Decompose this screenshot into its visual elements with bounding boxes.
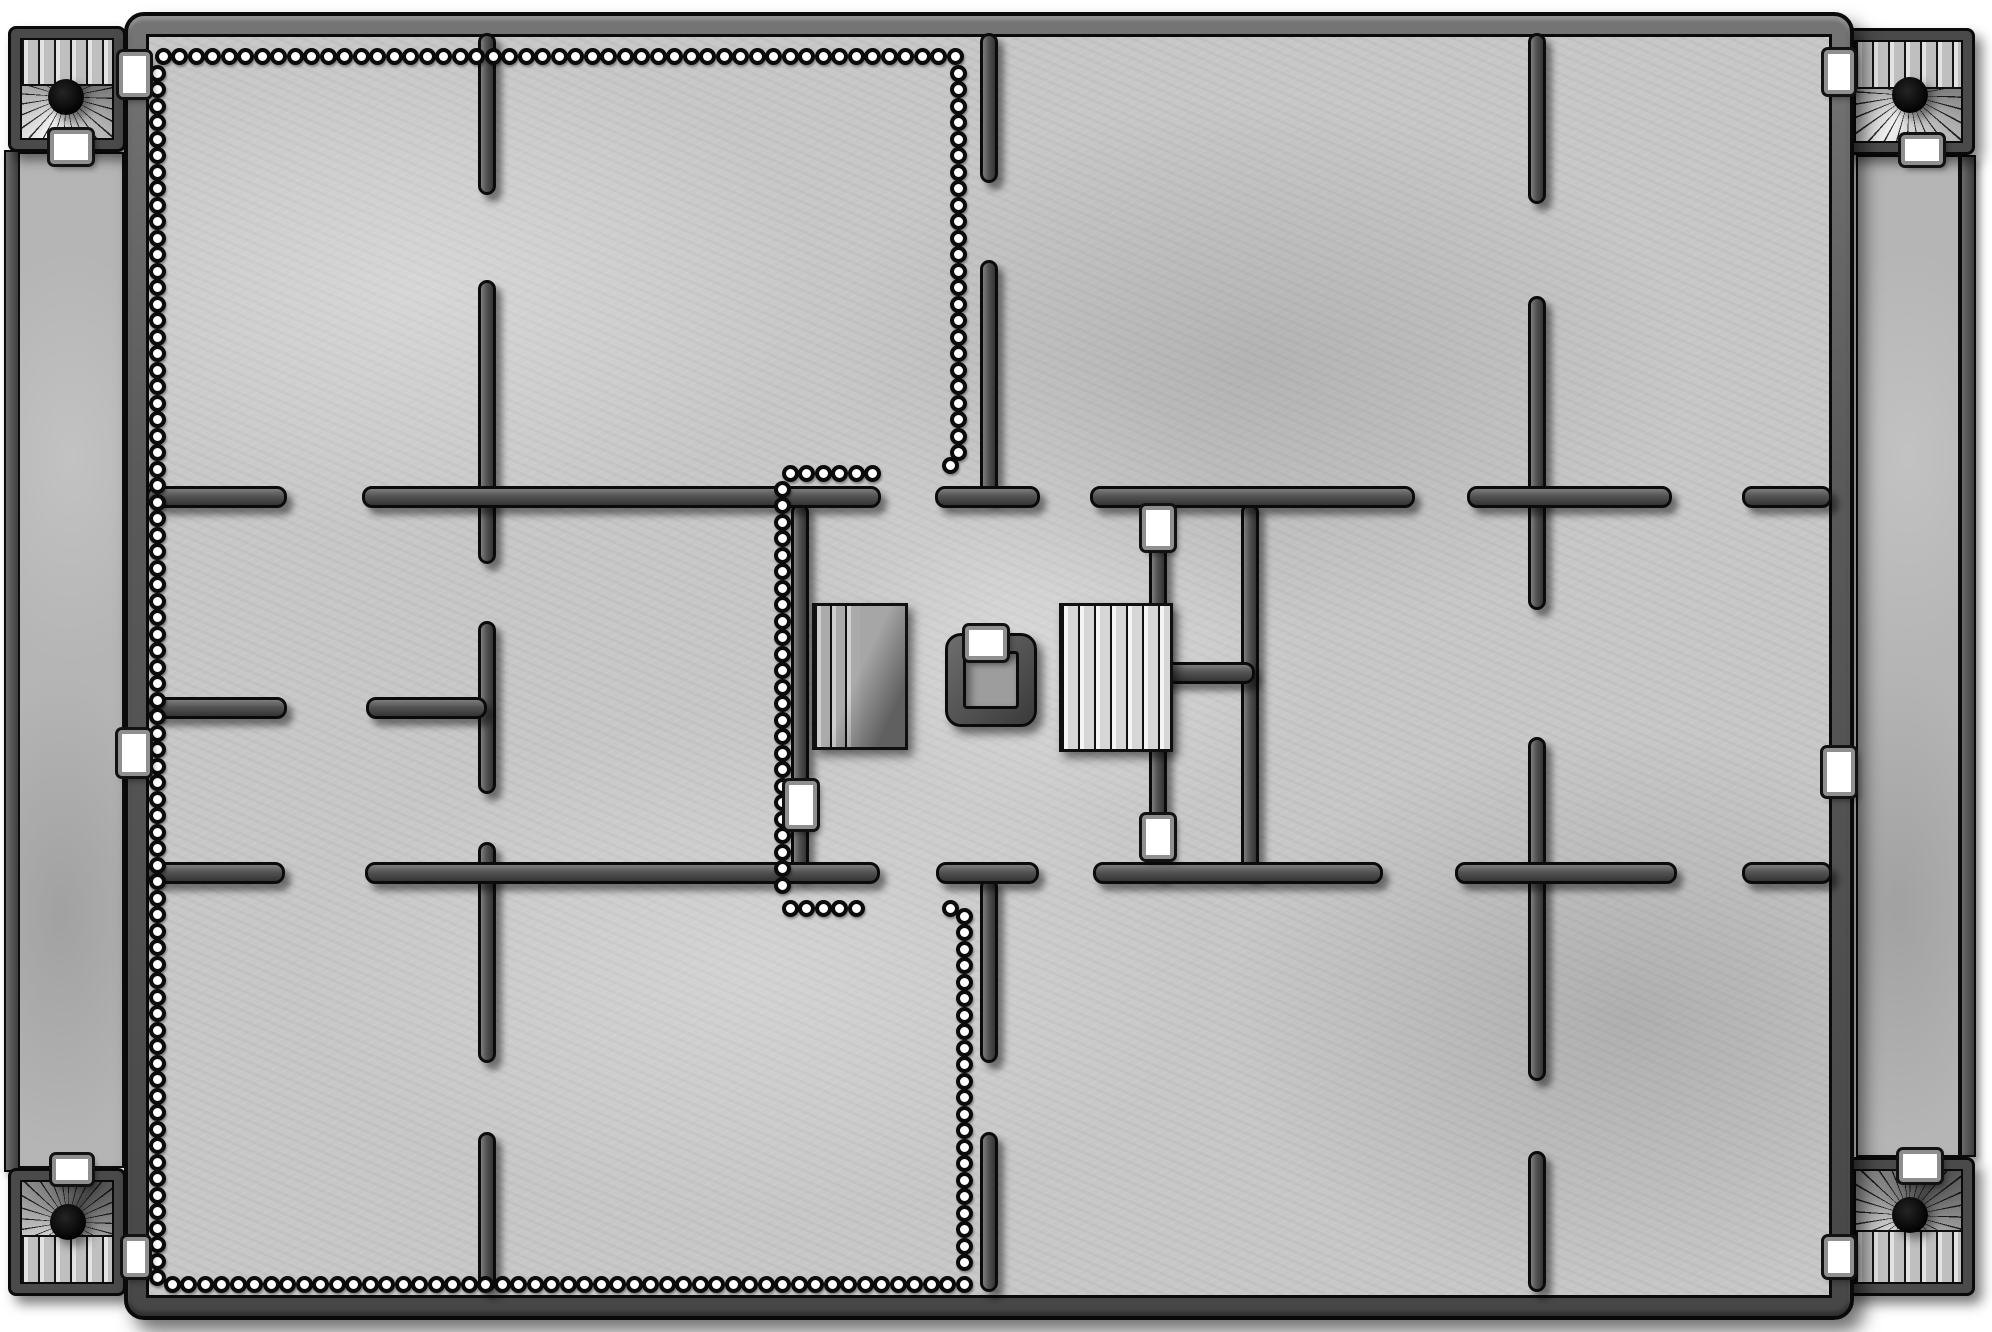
column-bead <box>149 411 166 428</box>
column-bead <box>560 1276 577 1293</box>
column-bead <box>699 48 716 65</box>
column-bead <box>774 530 791 547</box>
column-bead <box>149 1088 166 1105</box>
column-bead <box>774 745 791 762</box>
column-bead <box>171 48 188 65</box>
column-bead <box>303 48 320 65</box>
column-bead <box>149 692 166 709</box>
column-bead <box>149 560 166 577</box>
column-bead <box>149 725 166 742</box>
column-bead <box>890 1276 907 1293</box>
column-bead <box>461 1276 478 1293</box>
column-bead <box>782 48 799 65</box>
column-bead <box>774 481 791 498</box>
column-bead <box>149 461 166 478</box>
column-bead <box>716 48 733 65</box>
column-bead <box>774 596 791 613</box>
column-bead <box>149 98 166 115</box>
column-bead <box>149 65 166 82</box>
wall-segment <box>1528 296 1546 610</box>
column-bead <box>774 844 791 861</box>
column-bead <box>149 1137 166 1154</box>
column-bead <box>950 230 967 247</box>
column-bead <box>411 1276 428 1293</box>
column-bead <box>774 728 791 745</box>
wall-segment <box>1455 862 1677 884</box>
column-bead <box>782 900 799 917</box>
column-bead <box>956 1238 973 1255</box>
column-bead <box>725 1276 742 1293</box>
column-bead <box>950 329 967 346</box>
column-bead <box>950 279 967 296</box>
column-bead <box>617 48 634 65</box>
column-bead <box>501 48 518 65</box>
column-bead <box>149 1253 166 1270</box>
column-bead <box>923 1276 940 1293</box>
column-bead <box>692 1276 709 1293</box>
column-bead <box>149 675 166 692</box>
column-bead <box>485 48 502 65</box>
column-bead <box>149 609 166 626</box>
column-bead <box>774 646 791 663</box>
column-bead <box>149 1022 166 1039</box>
column-bead <box>659 1276 676 1293</box>
staircase-ascending <box>1059 603 1173 752</box>
column-bead <box>149 642 166 659</box>
column-bead <box>774 613 791 630</box>
door-stairroom-top-right <box>1901 135 1943 165</box>
column-bead <box>149 477 166 494</box>
column-bead <box>149 1170 166 1187</box>
column-bead <box>149 576 166 593</box>
column-bead <box>149 197 166 214</box>
column-bead <box>353 48 370 65</box>
column-bead <box>149 906 166 923</box>
column-bead <box>149 1236 166 1253</box>
corridor-right-outer-wall <box>1960 155 1976 1157</box>
column-bead <box>149 114 166 131</box>
spiral-stair-top-left <box>20 38 114 140</box>
door-left-border-bottom <box>123 1237 149 1277</box>
column-bead <box>270 48 287 65</box>
column-bead <box>510 1276 527 1293</box>
column-bead <box>149 758 166 775</box>
column-bead <box>897 48 914 65</box>
column-bead <box>749 48 766 65</box>
column-bead <box>197 1276 214 1293</box>
column-bead <box>956 1254 973 1271</box>
column-bead <box>149 180 166 197</box>
column-bead <box>149 774 166 791</box>
column-bead <box>873 1276 890 1293</box>
column-bead <box>774 761 791 778</box>
wall-segment <box>478 1132 496 1292</box>
column-bead <box>254 48 271 65</box>
column-bead <box>518 48 535 65</box>
column-bead <box>950 164 967 181</box>
column-bead <box>263 1276 280 1293</box>
column-bead <box>149 626 166 643</box>
column-bead <box>395 1276 412 1293</box>
column-bead <box>848 48 865 65</box>
door-right-border-middle <box>1823 748 1855 796</box>
column-bead <box>950 98 967 115</box>
wall-segment <box>1742 486 1832 508</box>
column-bead <box>774 679 791 696</box>
wall-segment <box>935 486 1040 508</box>
column-bead <box>864 465 881 482</box>
column-bead <box>534 48 551 65</box>
column-bead <box>149 791 166 808</box>
column-bead <box>774 497 791 514</box>
column-bead <box>149 428 166 445</box>
corridor-right-floor <box>1856 155 1960 1157</box>
column-bead <box>774 580 791 597</box>
column-bead <box>939 1276 956 1293</box>
door-stairroom-bottom-right <box>1899 1150 1941 1182</box>
column-bead <box>956 1106 973 1123</box>
wall-segment <box>146 486 287 508</box>
column-bead <box>956 990 973 1007</box>
column-bead <box>452 48 469 65</box>
column-bead <box>149 131 166 148</box>
column-bead <box>149 1038 166 1055</box>
stair-tread-band <box>1856 1230 1961 1282</box>
column-bead <box>149 956 166 973</box>
column-bead <box>831 48 848 65</box>
column-bead <box>149 972 166 989</box>
column-bead <box>950 362 967 379</box>
door-chamber-east-bottom <box>1142 815 1174 859</box>
column-bead <box>774 662 791 679</box>
column-bead <box>650 48 667 65</box>
column-bead <box>950 296 967 313</box>
column-bead <box>774 827 791 844</box>
column-bead <box>626 1276 643 1293</box>
column-bead <box>930 48 947 65</box>
column-bead <box>188 48 205 65</box>
column-bead <box>708 1276 725 1293</box>
column-bead <box>950 81 967 98</box>
column-bead <box>798 48 815 65</box>
wall-segment <box>980 260 998 500</box>
column-bead <box>593 1276 610 1293</box>
column-bead <box>950 180 967 197</box>
wall-segment <box>980 33 998 183</box>
column-bead <box>956 1056 973 1073</box>
column-bead <box>149 659 166 676</box>
column-bead <box>666 48 683 65</box>
column-bead <box>567 48 584 65</box>
column-bead <box>950 131 967 148</box>
column-bead <box>149 444 166 461</box>
column-bead <box>149 840 166 857</box>
column-bead <box>956 924 973 941</box>
wall-segment <box>1241 503 1259 877</box>
column-bead <box>848 465 865 482</box>
column-bead <box>956 1188 973 1205</box>
column-bead <box>164 1276 181 1293</box>
column-bead <box>956 1139 973 1156</box>
door-stairroom-top-left <box>50 130 92 164</box>
column-bead <box>807 1276 824 1293</box>
column-bead <box>798 900 815 917</box>
column-bead <box>840 1276 857 1293</box>
dungeon-map <box>0 0 1992 1332</box>
wall-segment <box>146 862 285 884</box>
column-bead <box>774 514 791 531</box>
column-bead <box>956 1221 973 1238</box>
column-bead <box>402 48 419 65</box>
column-bead <box>950 395 967 412</box>
column-bead <box>576 1276 593 1293</box>
column-bead <box>774 860 791 877</box>
door-right-border-bottom <box>1824 1237 1854 1277</box>
spiral-center-post-icon <box>1892 77 1928 113</box>
column-bead <box>950 246 967 263</box>
column-bead <box>149 81 166 98</box>
column-bead <box>149 279 166 296</box>
wall-segment <box>1528 1151 1546 1292</box>
column-bead <box>155 48 172 65</box>
column-bead <box>956 1073 973 1090</box>
stair-tread-band <box>22 1235 112 1282</box>
column-bead <box>956 1172 973 1189</box>
column-bead <box>444 1276 461 1293</box>
column-bead <box>956 1040 973 1057</box>
wall-segment <box>478 280 496 564</box>
column-bead <box>149 923 166 940</box>
column-bead <box>279 1276 296 1293</box>
column-bead <box>204 48 221 65</box>
column-bead <box>149 1055 166 1072</box>
column-bead <box>149 1005 166 1022</box>
column-bead <box>942 457 959 474</box>
column-bead <box>765 48 782 65</box>
column-bead <box>950 428 967 445</box>
column-bead <box>848 900 865 917</box>
column-bead <box>942 900 959 917</box>
column-bead <box>149 296 166 313</box>
column-bead <box>149 263 166 280</box>
column-bead <box>329 1276 346 1293</box>
column-bead <box>950 114 967 131</box>
column-bead <box>320 48 337 65</box>
column-bead <box>494 1276 511 1293</box>
column-bead <box>477 1276 494 1293</box>
column-bead <box>149 824 166 841</box>
column-bead <box>428 1276 445 1293</box>
column-bead <box>149 939 166 956</box>
column-bead <box>543 1276 560 1293</box>
column-bead <box>149 1220 166 1237</box>
column-bead <box>149 395 166 412</box>
column-bead <box>149 246 166 263</box>
column-bead <box>774 547 791 564</box>
column-bead <box>642 1276 659 1293</box>
column-bead <box>149 1187 166 1204</box>
column-bead <box>956 1023 973 1040</box>
column-bead <box>149 378 166 395</box>
staircase-descending <box>812 603 908 750</box>
column-bead <box>815 465 832 482</box>
column-bead <box>180 1276 197 1293</box>
column-bead <box>149 213 166 230</box>
column-bead <box>149 362 166 379</box>
column-bead <box>149 147 166 164</box>
column-bead <box>675 1276 692 1293</box>
column-bead <box>551 48 568 65</box>
column-bead <box>149 741 166 758</box>
column-bead <box>149 1071 166 1088</box>
column-bead <box>831 900 848 917</box>
column-bead <box>296 1276 313 1293</box>
column-bead <box>815 900 832 917</box>
column-bead <box>149 873 166 890</box>
column-bead <box>362 1276 379 1293</box>
column-bead <box>221 48 238 65</box>
column-bead <box>914 48 931 65</box>
column-bead <box>881 48 898 65</box>
column-bead <box>956 1007 973 1024</box>
column-bead <box>950 65 967 82</box>
column-bead <box>149 510 166 527</box>
column-bead <box>831 465 848 482</box>
wall-segment <box>1090 486 1415 508</box>
door-chamber-east-top <box>1142 506 1174 550</box>
column-bead <box>774 629 791 646</box>
well-door <box>965 626 1007 660</box>
column-bead <box>336 48 353 65</box>
column-bead <box>950 147 967 164</box>
column-bead <box>369 48 386 65</box>
door-chamber-west <box>785 781 817 829</box>
wall-segment <box>146 697 287 719</box>
column-bead <box>774 877 791 894</box>
column-bead <box>149 1269 166 1286</box>
column-bead <box>947 48 964 65</box>
spiral-stair-bottom-left <box>20 1180 114 1284</box>
column-bead <box>386 48 403 65</box>
column-bead <box>956 1205 973 1222</box>
column-bead <box>149 807 166 824</box>
column-bead <box>956 957 973 974</box>
column-bead <box>149 1121 166 1138</box>
door-right-border-top <box>1824 50 1854 94</box>
column-bead <box>950 213 967 230</box>
column-bead <box>758 1276 775 1293</box>
column-bead <box>956 1155 973 1172</box>
column-bead <box>683 48 700 65</box>
column-bead <box>774 1276 791 1293</box>
column-bead <box>468 48 485 65</box>
column-bead <box>956 1276 973 1293</box>
column-bead <box>956 974 973 991</box>
column-bead <box>287 48 304 65</box>
column-bead <box>149 708 166 725</box>
column-bead <box>950 411 967 428</box>
column-bead <box>149 543 166 560</box>
column-bead <box>782 465 799 482</box>
column-bead <box>149 312 166 329</box>
column-bead <box>149 230 166 247</box>
column-bead <box>345 1276 362 1293</box>
column-bead <box>774 712 791 729</box>
column-bead <box>774 563 791 580</box>
column-bead <box>950 197 967 214</box>
column-bead <box>149 164 166 181</box>
door-left-border-middle <box>118 730 150 776</box>
column-bead <box>246 1276 263 1293</box>
column-bead <box>149 1203 166 1220</box>
wall-segment <box>365 862 880 884</box>
column-bead <box>527 1276 544 1293</box>
column-bead <box>149 527 166 544</box>
column-bead <box>798 465 815 482</box>
spiral-center-post-icon <box>48 79 84 115</box>
column-bead <box>149 1104 166 1121</box>
column-bead <box>435 48 452 65</box>
column-bead <box>419 48 436 65</box>
column-bead <box>584 48 601 65</box>
wall-segment <box>1528 33 1546 204</box>
column-bead <box>378 1276 395 1293</box>
spiral-stair-bottom-right <box>1854 1169 1963 1284</box>
column-bead <box>633 48 650 65</box>
column-bead <box>950 263 967 280</box>
column-bead <box>732 48 749 65</box>
column-bead <box>149 890 166 907</box>
column-bead <box>600 48 617 65</box>
column-bead <box>824 1276 841 1293</box>
wall-segment <box>1093 862 1383 884</box>
column-bead <box>956 941 973 958</box>
column-bead <box>312 1276 329 1293</box>
column-bead <box>149 593 166 610</box>
wall-segment <box>980 1132 998 1292</box>
spiral-center-post-icon <box>1892 1197 1928 1233</box>
column-bead <box>213 1276 230 1293</box>
column-bead <box>774 695 791 712</box>
column-bead <box>956 1122 973 1139</box>
column-bead <box>950 345 967 362</box>
wall-segment <box>1528 737 1546 1081</box>
wall-segment <box>936 862 1039 884</box>
door-left-border-top <box>119 52 150 97</box>
column-bead <box>149 989 166 1006</box>
door-stairroom-bottom-left <box>52 1155 92 1184</box>
corridor-left-floor <box>18 152 124 1168</box>
column-bead <box>237 48 254 65</box>
wall-segment <box>980 878 998 1063</box>
column-bead <box>149 494 166 511</box>
spiral-stair-room-bottom-left <box>8 1168 126 1296</box>
column-bead <box>791 1276 808 1293</box>
spiral-center-post-icon <box>50 1204 86 1240</box>
column-bead <box>230 1276 247 1293</box>
column-bead <box>741 1276 758 1293</box>
column-bead <box>149 329 166 346</box>
column-bead <box>906 1276 923 1293</box>
wall-segment <box>362 486 881 508</box>
column-bead <box>950 378 967 395</box>
column-bead <box>956 1089 973 1106</box>
column-bead <box>864 48 881 65</box>
column-bead <box>149 857 166 874</box>
column-bead <box>950 312 967 329</box>
column-bead <box>149 1154 166 1171</box>
column-bead <box>609 1276 626 1293</box>
